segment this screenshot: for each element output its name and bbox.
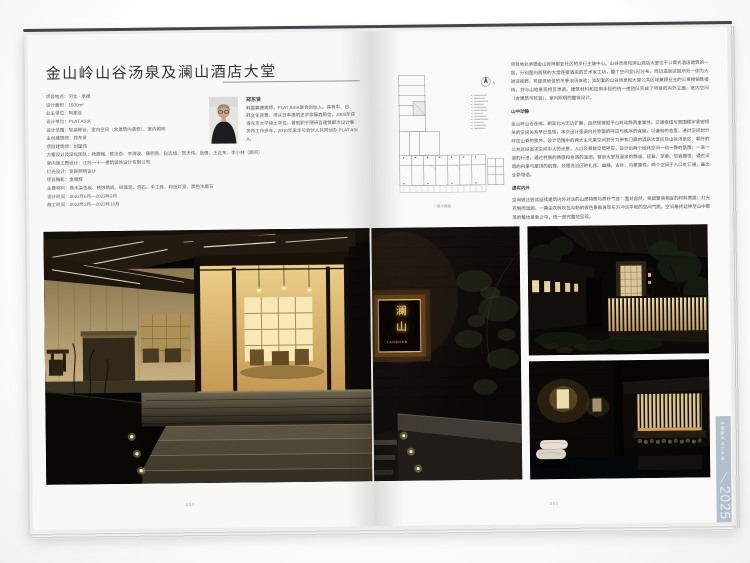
section-heading: 山中动静 [511,105,709,116]
yearbook-series-label: 中国室内设计年鉴 [720,421,726,461]
exterior-photo [527,224,708,355]
architect-bio: 韩国籍建筑师，PLAT ASIA联合创始人。具有中、日、韩文化背景，师从日本建筑… [246,103,359,182]
sign-photo-art [371,226,522,481]
title-rule [223,80,360,83]
right-page: N 一层平面图 [369,27,733,526]
edge-year-tab: 中国室内设计年鉴 2025 [716,416,732,522]
plan-caption: 一层平面图 [434,203,452,208]
open-book-spread: 金山岭山谷汤泉及澜山酒店大堂 项目地点：河北 · 承德 设计面积：1500m² … [24,23,737,534]
page-number-left: 034 [186,502,195,507]
spa-photo-art [529,359,710,479]
section-paragraph: 金山岭山谷连绵，朝其北方无边扩展，自然规律赋予山岭动静两重属性。交通枢纽与周围楼… [511,118,710,180]
architect-name: 郑东贤 [246,95,261,102]
floor-plan: N 一层平面图 [383,71,507,214]
exterior-photo-art [527,224,708,355]
project-title: 金山岭山谷汤泉及澜山酒店大堂 [46,60,277,84]
yearbook-year-label: 2025 [717,486,732,520]
page-number-right: 035 [550,501,559,506]
intro-paragraph: 项目地处承德金山岭阿那亚社区的步行主轴中心。山谷汤泉和澜山酒店大堂位于公寓式酒店… [511,58,709,103]
lobby-photo-art [43,228,372,485]
spa-photo [529,359,710,479]
lanshan-sign-text: 澜山 [392,305,408,337]
section-paragraph: 空间做法尝试延续建筑内外对话的山居特质与质朴气息：面对自然，保留繁简相宜的材料质… [512,194,710,222]
sign-photo: 澜山 LANSHAN [371,226,522,481]
tab-divider-line [720,472,728,484]
left-page: 金山岭山谷汤泉及澜山酒店大堂 项目地点：河北 · 承德 设计面积：1500m² … [27,31,375,530]
architect-portrait-art [209,97,239,144]
lanshan-sign-subtext: LANSHAN [387,341,408,344]
lobby-photo [43,228,372,485]
floor-plan-drawing: N 一层平面图 [383,71,507,214]
architect-portrait-photo [209,97,239,144]
section-heading: 虚实内外 [512,182,710,193]
